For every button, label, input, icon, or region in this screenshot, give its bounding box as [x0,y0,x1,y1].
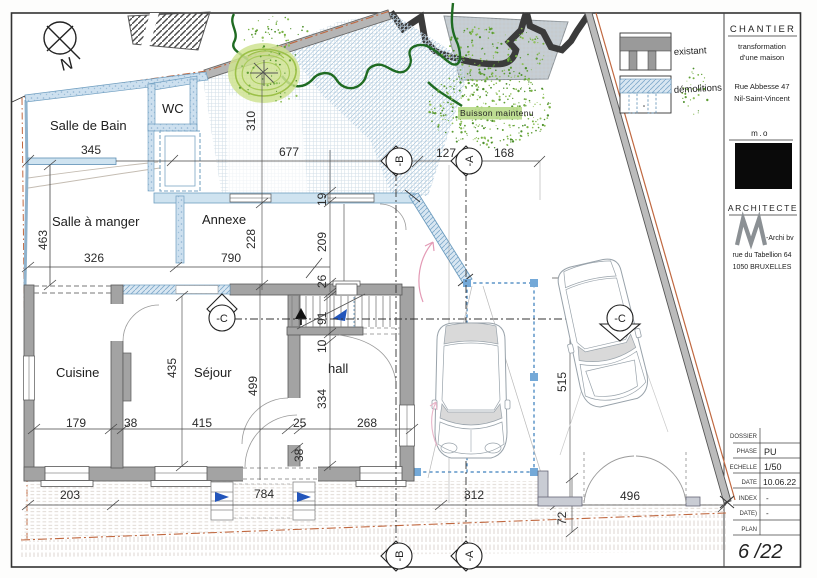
svg-text:168: 168 [494,146,514,160]
svg-text:19: 19 [315,192,329,206]
svg-text:515: 515 [555,372,569,392]
svg-text:179: 179 [66,416,86,430]
svg-text:INDEX: INDEX [739,496,757,502]
svg-text:-A: -A [464,155,476,167]
svg-text:ARCHITECTE: ARCHITECTE [728,203,798,213]
svg-text:435: 435 [165,358,179,378]
svg-text:DATE): DATE) [739,511,757,517]
svg-text:677: 677 [279,145,299,159]
svg-text:rue du Tabellion 64: rue du Tabellion 64 [732,252,791,259]
svg-text:10.06.22: 10.06.22 [763,477,796,487]
svg-text:-B: -B [394,156,406,167]
svg-text:345: 345 [81,143,101,157]
svg-text:310: 310 [244,111,258,131]
svg-text:496: 496 [620,489,640,503]
svg-text:6 /22: 6 /22 [738,541,782,563]
svg-text:790: 790 [221,251,241,265]
svg-text:203: 203 [60,488,80,502]
svg-text:Nil-Saint-Vincent: Nil-Saint-Vincent [734,94,791,103]
svg-text:334: 334 [315,389,329,409]
svg-text:WC: WC [162,101,184,116]
svg-text:Salle de Bain: Salle de Bain [50,118,127,133]
svg-text:-: - [766,509,769,518]
svg-text:PU: PU [764,447,777,457]
svg-text:209: 209 [315,232,329,252]
svg-text:1050 BRUXELLES: 1050 BRUXELLES [733,264,792,271]
svg-text:72: 72 [555,511,569,525]
svg-text:Annexe: Annexe [202,212,246,227]
svg-text:Buisson maintenu: Buisson maintenu [460,108,534,118]
svg-text:Séjour: Séjour [194,365,232,380]
svg-text:PHASE: PHASE [737,449,757,455]
svg-text:784: 784 [254,487,274,501]
svg-text:Salle à manger: Salle à manger [52,214,140,229]
svg-text:326: 326 [84,251,104,265]
svg-text:-A: -A [464,550,476,562]
svg-text:Rue Abbesse 47: Rue Abbesse 47 [734,82,789,91]
svg-text:-Archi bv: -Archi bv [766,235,794,242]
svg-text:25: 25 [293,416,307,430]
svg-text:-C: -C [614,313,626,325]
svg-text:-: - [766,494,769,503]
svg-text:PLAN: PLAN [741,527,757,533]
svg-text:127: 127 [436,146,456,160]
svg-text:existant: existant [674,45,708,58]
svg-text:415: 415 [192,416,212,430]
svg-text:-C: -C [216,313,228,325]
svg-text:10: 10 [315,339,329,353]
svg-text:m.o: m.o [751,129,769,138]
svg-text:Cuisine: Cuisine [56,365,99,380]
svg-text:268: 268 [357,416,377,430]
svg-text:d'une maison: d'une maison [740,53,784,62]
svg-text:499: 499 [246,376,260,396]
svg-text:DATE: DATE [741,480,757,486]
svg-text:312: 312 [464,488,484,502]
svg-text:hall: hall [328,361,348,376]
svg-text:38: 38 [124,416,138,430]
svg-text:-B: -B [394,551,406,562]
svg-text:463: 463 [36,230,50,250]
svg-text:91: 91 [315,311,329,325]
svg-text:ECHELLE: ECHELLE [730,465,757,471]
svg-text:228: 228 [244,229,258,249]
svg-text:CHANTIER: CHANTIER [730,24,796,35]
svg-text:DOSSIER: DOSSIER [730,434,758,440]
svg-text:1/50: 1/50 [764,462,782,472]
svg-text:transformation: transformation [738,42,786,51]
svg-text:26: 26 [315,274,329,288]
